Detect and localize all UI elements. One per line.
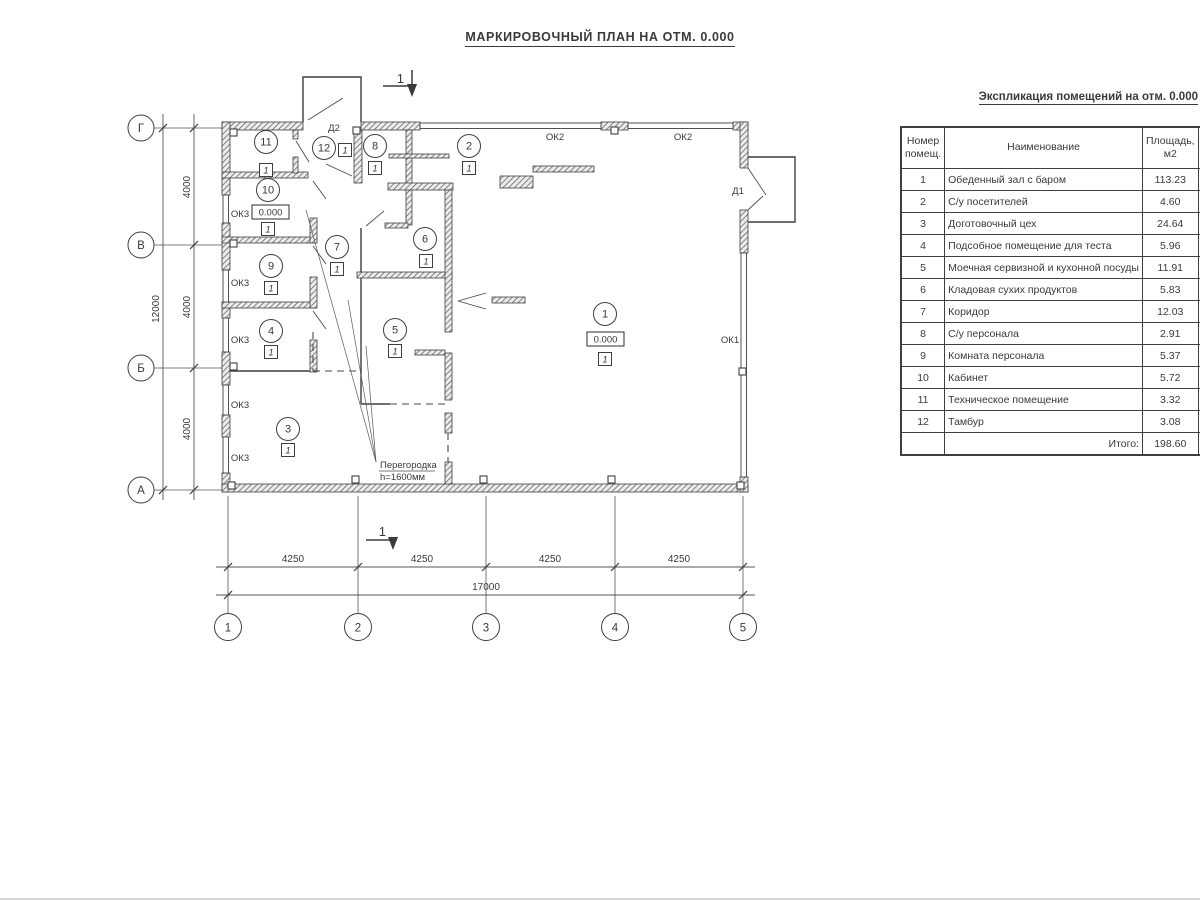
room-number-cell: 10 — [901, 367, 945, 389]
room-name-cell: Доготовочный цех — [945, 213, 1143, 235]
col-header-number: Номерпомещ. — [901, 127, 945, 169]
explication-row: 5Моечная сервизной и кухонной посуды11.9… — [901, 257, 1200, 279]
axis-label-left: А — [137, 485, 145, 497]
window-label-ok3: ОК3 — [231, 400, 249, 411]
room-name-cell: Кладовая сухих продуктов — [945, 279, 1143, 301]
explication-table-wrap: Номерпомещ. Наименование Площадь,м2 Капо… — [900, 126, 1200, 456]
room-name-cell: Кабинет — [945, 367, 1143, 389]
room-name-cell: Техническое помещение — [945, 389, 1143, 411]
explication-total-row: Итого: 198.60 — [901, 433, 1200, 456]
dim-bottom-segment: 4250 — [539, 554, 562, 565]
room-area-cell: 24.64 — [1142, 213, 1198, 235]
partition-note-line1: Перегородка — [380, 460, 437, 471]
room-number-cell: 5 — [901, 257, 945, 279]
room-area-cell: 4.60 — [1142, 191, 1198, 213]
room-name-cell: С/у посетителей — [945, 191, 1143, 213]
axis-label-left: В — [137, 240, 145, 252]
room-number-cell: 8 — [901, 323, 945, 345]
explication-row: 9Комната персонала5.37 — [901, 345, 1200, 367]
room-number-10: 10 — [262, 185, 274, 197]
room-number-7: 7 — [334, 242, 340, 254]
floor-type-number: 1 — [372, 163, 377, 174]
dim-left-segment: 4000 — [182, 175, 193, 198]
room-name-cell: Обеденный зал с баром — [945, 169, 1143, 191]
room-number-cell: 9 — [901, 345, 945, 367]
room-area-cell: 3.08 — [1142, 411, 1198, 433]
explication-row: 11Техническое помещение3.32 — [901, 389, 1200, 411]
floor-type-number: 1 — [285, 445, 290, 456]
dim-bottom-total: 17000 — [472, 582, 500, 593]
room-area-cell: 11.91 — [1142, 257, 1198, 279]
room-number-8: 8 — [372, 141, 378, 153]
svg-text:0.000: 0.000 — [594, 335, 618, 346]
room-number-cell: 12 — [901, 411, 945, 433]
dim-left-segment: 4000 — [182, 417, 193, 440]
dim-left-total: 12000 — [151, 295, 162, 323]
dimension-lines — [163, 114, 755, 595]
explication-table: Номерпомещ. Наименование Площадь,м2 Капо… — [900, 126, 1200, 456]
room-area-cell: 5.37 — [1142, 345, 1198, 367]
room-number-11: 11 — [260, 137, 271, 149]
room-number-cell: 11 — [901, 389, 945, 411]
floor-type-number: 1 — [268, 283, 273, 294]
room-number-cell: 6 — [901, 279, 945, 301]
window-label-ok2: ОК2 — [546, 132, 564, 143]
room-area-cell: 5.96 — [1142, 235, 1198, 257]
floor-type-number: 1 — [602, 354, 607, 365]
axis-label-bottom: 4 — [612, 623, 619, 635]
explication-header-row: Номерпомещ. Наименование Площадь,м2 Капо — [901, 127, 1200, 169]
room-area-cell: 12.03 — [1142, 301, 1198, 323]
section-mark-bottom: 1 — [366, 524, 398, 550]
room-number-cell: 1 — [901, 169, 945, 191]
explication-row: 4Подсобное помещение для теста5.96 — [901, 235, 1200, 257]
door-label-d2: Д2 — [328, 123, 340, 134]
col-header-name: Наименование — [945, 127, 1143, 169]
column-marker — [739, 368, 746, 375]
column-marker — [228, 482, 235, 489]
window-label-ok3: ОК3 — [231, 453, 249, 464]
column-marker — [352, 476, 359, 483]
room-number-3: 3 — [285, 424, 291, 436]
column-marker — [737, 482, 744, 489]
floor-type-number: 1 — [334, 264, 339, 275]
room-number-cell: 4 — [901, 235, 945, 257]
room-number-12: 12 — [318, 143, 330, 155]
room-number-5: 5 — [392, 325, 398, 337]
room-name-cell: Подсобное помещение для теста — [945, 235, 1143, 257]
section-number: 1 — [379, 524, 386, 539]
svg-text:0.000: 0.000 — [259, 208, 283, 219]
total-empty-cell — [901, 433, 945, 456]
room-area-cell: 2.91 — [1142, 323, 1198, 345]
walls — [222, 122, 748, 492]
axis-label-bottom: 3 — [483, 623, 489, 635]
room-name-cell: Коридор — [945, 301, 1143, 323]
room-number-9: 9 — [268, 261, 274, 273]
explication-title: Экспликация помещений на отм. 0.000 — [898, 91, 1198, 103]
room-number-2: 2 — [466, 141, 472, 153]
column-marker — [230, 240, 237, 247]
window-label-ok3: ОК3 — [231, 209, 249, 220]
column-marker — [480, 476, 487, 483]
column-marker — [611, 127, 618, 134]
floor-type-number: 1 — [265, 224, 270, 235]
total-value: 198.60 — [1142, 433, 1198, 456]
room-area-cell: 3.32 — [1142, 389, 1198, 411]
floor-type-number: 1 — [263, 165, 268, 176]
room-name-cell: Тамбур — [945, 411, 1143, 433]
axis-label-left: Б — [137, 363, 145, 375]
room-number-6: 6 — [422, 234, 428, 246]
section-mark-top: 1 — [383, 70, 417, 97]
axis-label-bottom: 5 — [740, 623, 746, 635]
floor-type-number: 1 — [342, 145, 347, 156]
dim-left-segment: 4000 — [182, 295, 193, 318]
explication-row: 6Кладовая сухих продуктов5.83 — [901, 279, 1200, 301]
window-label-ok1: ОК1 — [721, 335, 739, 346]
room-area-cell: 113.23 — [1142, 169, 1198, 191]
column-marker — [230, 363, 237, 370]
window-label-ok3: ОК3 — [231, 335, 249, 346]
room-name-cell: Моечная сервизной и кухонной посуды — [945, 257, 1143, 279]
explication-row: 1Обеденный зал с баром113.23 — [901, 169, 1200, 191]
explication-row: 8С/у персонала2.91 — [901, 323, 1200, 345]
window-label-ok3: ОК3 — [231, 278, 249, 289]
floor-type-number: 1 — [466, 163, 471, 174]
floor-type-number: 1 — [392, 346, 397, 357]
floor-type-number: 1 — [423, 256, 428, 267]
explication-row: 12Тамбур3.08 — [901, 411, 1200, 433]
explication-row: 7Коридор12.03 — [901, 301, 1200, 323]
room-name-cell: Комната персонала — [945, 345, 1143, 367]
col-header-area: Площадь,м2 — [1142, 127, 1198, 169]
door-label-d1: Д1 — [732, 186, 744, 197]
explication-row: 3Доготовочный цех24.64 — [901, 213, 1200, 235]
room-number-4: 4 — [268, 326, 274, 338]
column-marker — [230, 129, 237, 136]
column-marker — [608, 476, 615, 483]
window-label-ok2: ОК2 — [674, 132, 692, 143]
floor-type-number: 1 — [268, 347, 273, 358]
dim-bottom-segment: 4250 — [411, 554, 434, 565]
door-leaves — [296, 98, 766, 329]
room-number-1: 1 — [602, 309, 608, 321]
axis-label-left: Г — [138, 123, 145, 135]
room-number-cell: 2 — [901, 191, 945, 213]
drawing-sheet: МАРКИРОВОЧНЫЙ ПЛАН НА ОТМ. 0.000 — [0, 0, 1200, 900]
axis-label-bottom: 1 — [225, 623, 231, 635]
room-number-cell: 7 — [901, 301, 945, 323]
explication-row: 10Кабинет5.72 — [901, 367, 1200, 389]
room-area-cell: 5.72 — [1142, 367, 1198, 389]
room-name-cell: С/у персонала — [945, 323, 1143, 345]
axis-label-bottom: 2 — [355, 623, 361, 635]
dim-bottom-segment: 4250 — [668, 554, 691, 565]
dim-bottom-segment: 4250 — [282, 554, 305, 565]
column-marker — [353, 127, 360, 134]
total-label: Итого: — [945, 433, 1143, 456]
explication-row: 2С/у посетителей4.60 — [901, 191, 1200, 213]
room-area-cell: 5.83 — [1142, 279, 1198, 301]
partition-note-line2: h=1600мм — [380, 472, 425, 483]
section-number: 1 — [397, 71, 404, 86]
room-number-cell: 3 — [901, 213, 945, 235]
